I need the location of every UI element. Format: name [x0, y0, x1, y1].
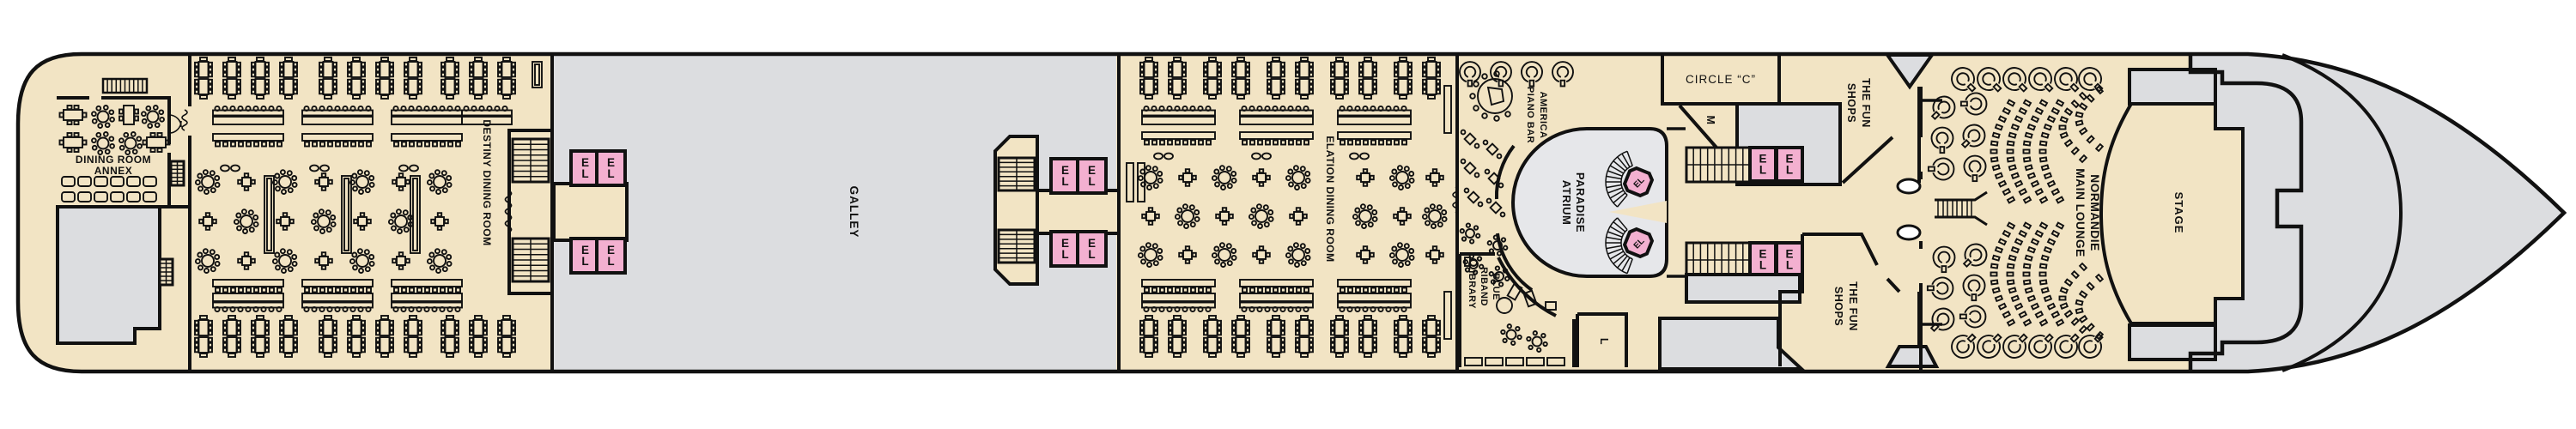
svg-text:AMERICA: AMERICA — [1538, 92, 1548, 139]
svg-text:CIRCLE “C”: CIRCLE “C” — [1686, 73, 1756, 86]
svg-text:L: L — [1088, 175, 1095, 188]
svg-text:ANNEX: ANNEX — [94, 165, 133, 177]
svg-text:RIBAND: RIBAND — [1479, 267, 1489, 306]
svg-text:L: L — [1598, 338, 1610, 345]
svg-text:L: L — [581, 255, 588, 268]
svg-text:STAGE: STAGE — [2172, 192, 2185, 234]
svg-text:M: M — [1704, 116, 1716, 125]
svg-text:DESTINY DINING ROOM: DESTINY DINING ROOM — [481, 119, 493, 245]
svg-text:LIBRARY: LIBRARY — [1467, 264, 1477, 309]
svg-text:BLUE: BLUE — [1491, 273, 1501, 300]
svg-text:NORMANDIE: NORMANDIE — [2088, 174, 2101, 251]
svg-text:L: L — [1786, 259, 1793, 272]
svg-text:THE FUN: THE FUN — [1860, 78, 1872, 128]
svg-text:L: L — [1786, 164, 1793, 177]
svg-text:ELATION DINING ROOM: ELATION DINING ROOM — [1324, 136, 1336, 262]
svg-text:SHOPS: SHOPS — [1832, 287, 1844, 326]
svg-text:MAIN LOUNGE: MAIN LOUNGE — [2074, 168, 2087, 257]
svg-text:PIANO BAR: PIANO BAR — [1525, 87, 1535, 143]
svg-text:ATRIUM: ATRIUM — [1560, 180, 1573, 226]
svg-text:L: L — [1759, 259, 1766, 272]
svg-text:L: L — [581, 167, 588, 180]
svg-text:PARADISE: PARADISE — [1574, 172, 1587, 233]
svg-text:DINING ROOM: DINING ROOM — [76, 154, 151, 166]
svg-text:L: L — [607, 255, 614, 268]
svg-text:L: L — [1088, 248, 1095, 261]
svg-text:SHOPS: SHOPS — [1845, 83, 1857, 123]
svg-text:GALLEY: GALLEY — [848, 186, 860, 239]
svg-text:THE FUN: THE FUN — [1847, 281, 1859, 331]
svg-text:L: L — [1061, 248, 1068, 261]
svg-text:L: L — [1759, 164, 1766, 177]
svg-text:L: L — [1061, 175, 1068, 188]
svg-text:L: L — [607, 167, 614, 180]
